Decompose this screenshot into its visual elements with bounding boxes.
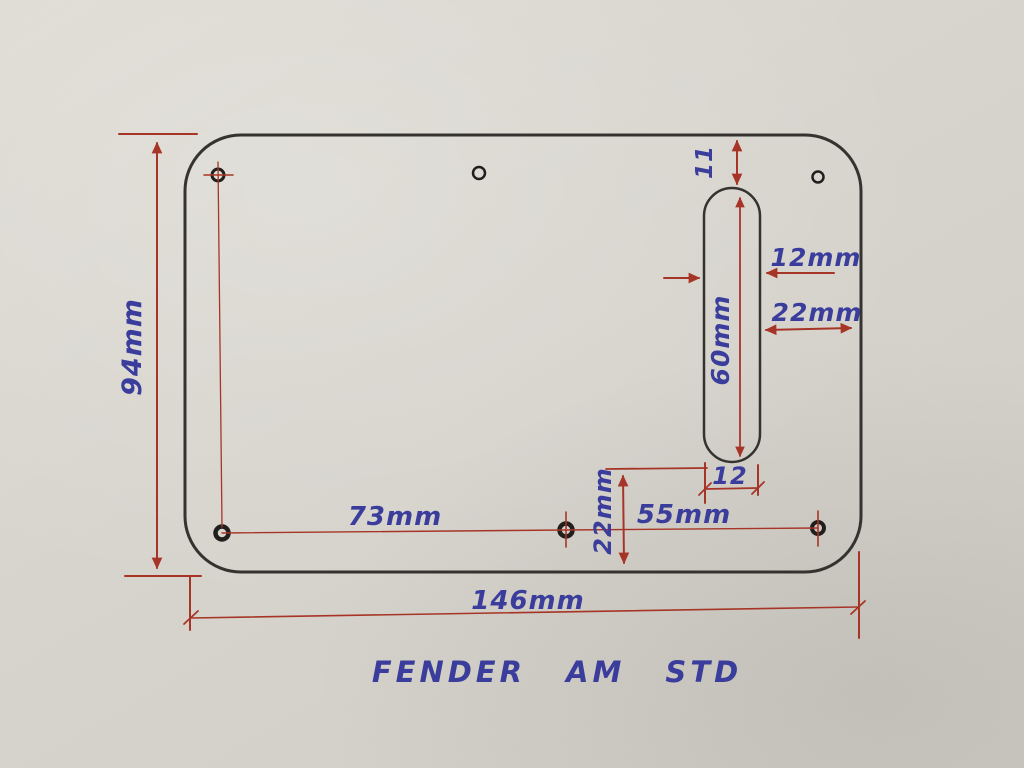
extension-line (606, 468, 707, 469)
label-slot-width: 12mm (771, 243, 862, 272)
dimension-slot-width (664, 273, 834, 278)
label-hole-span-right: 55mm (637, 500, 731, 530)
dimension-arrow (623, 476, 624, 563)
label-slot-length: 60mm (706, 295, 735, 386)
drawing-title: FENDER AM STD (372, 655, 742, 689)
screw-hole-top-middle (473, 167, 485, 179)
measurement-labels: 94mm 11 12mm 22mm 60mm 12 22mm 55mm 73mm… (117, 145, 862, 616)
label-plate-width: 146mm (471, 586, 584, 616)
label-plate-height: 94mm (117, 298, 148, 396)
screw-hole-top-right (813, 172, 824, 183)
left-holes-centerline (218, 162, 222, 527)
label-slot-to-right-edge: 22mm (772, 298, 863, 327)
label-slot-top-gap: 11 (692, 145, 718, 179)
paper-sheet: 94mm 11 12mm 22mm 60mm 12 22mm 55mm 73mm… (0, 0, 1024, 768)
label-slot-bottom-gap: 22mm (589, 467, 617, 554)
backplate-outline (185, 135, 861, 572)
technical-drawing: 94mm 11 12mm 22mm 60mm 12 22mm 55mm 73mm… (0, 0, 1024, 768)
dimension-arrow (766, 328, 851, 330)
label-slot-end-width: 12 (712, 462, 747, 490)
dimension-slot-to-right-edge (766, 328, 851, 330)
label-hole-span-left: 73mm (348, 502, 442, 532)
